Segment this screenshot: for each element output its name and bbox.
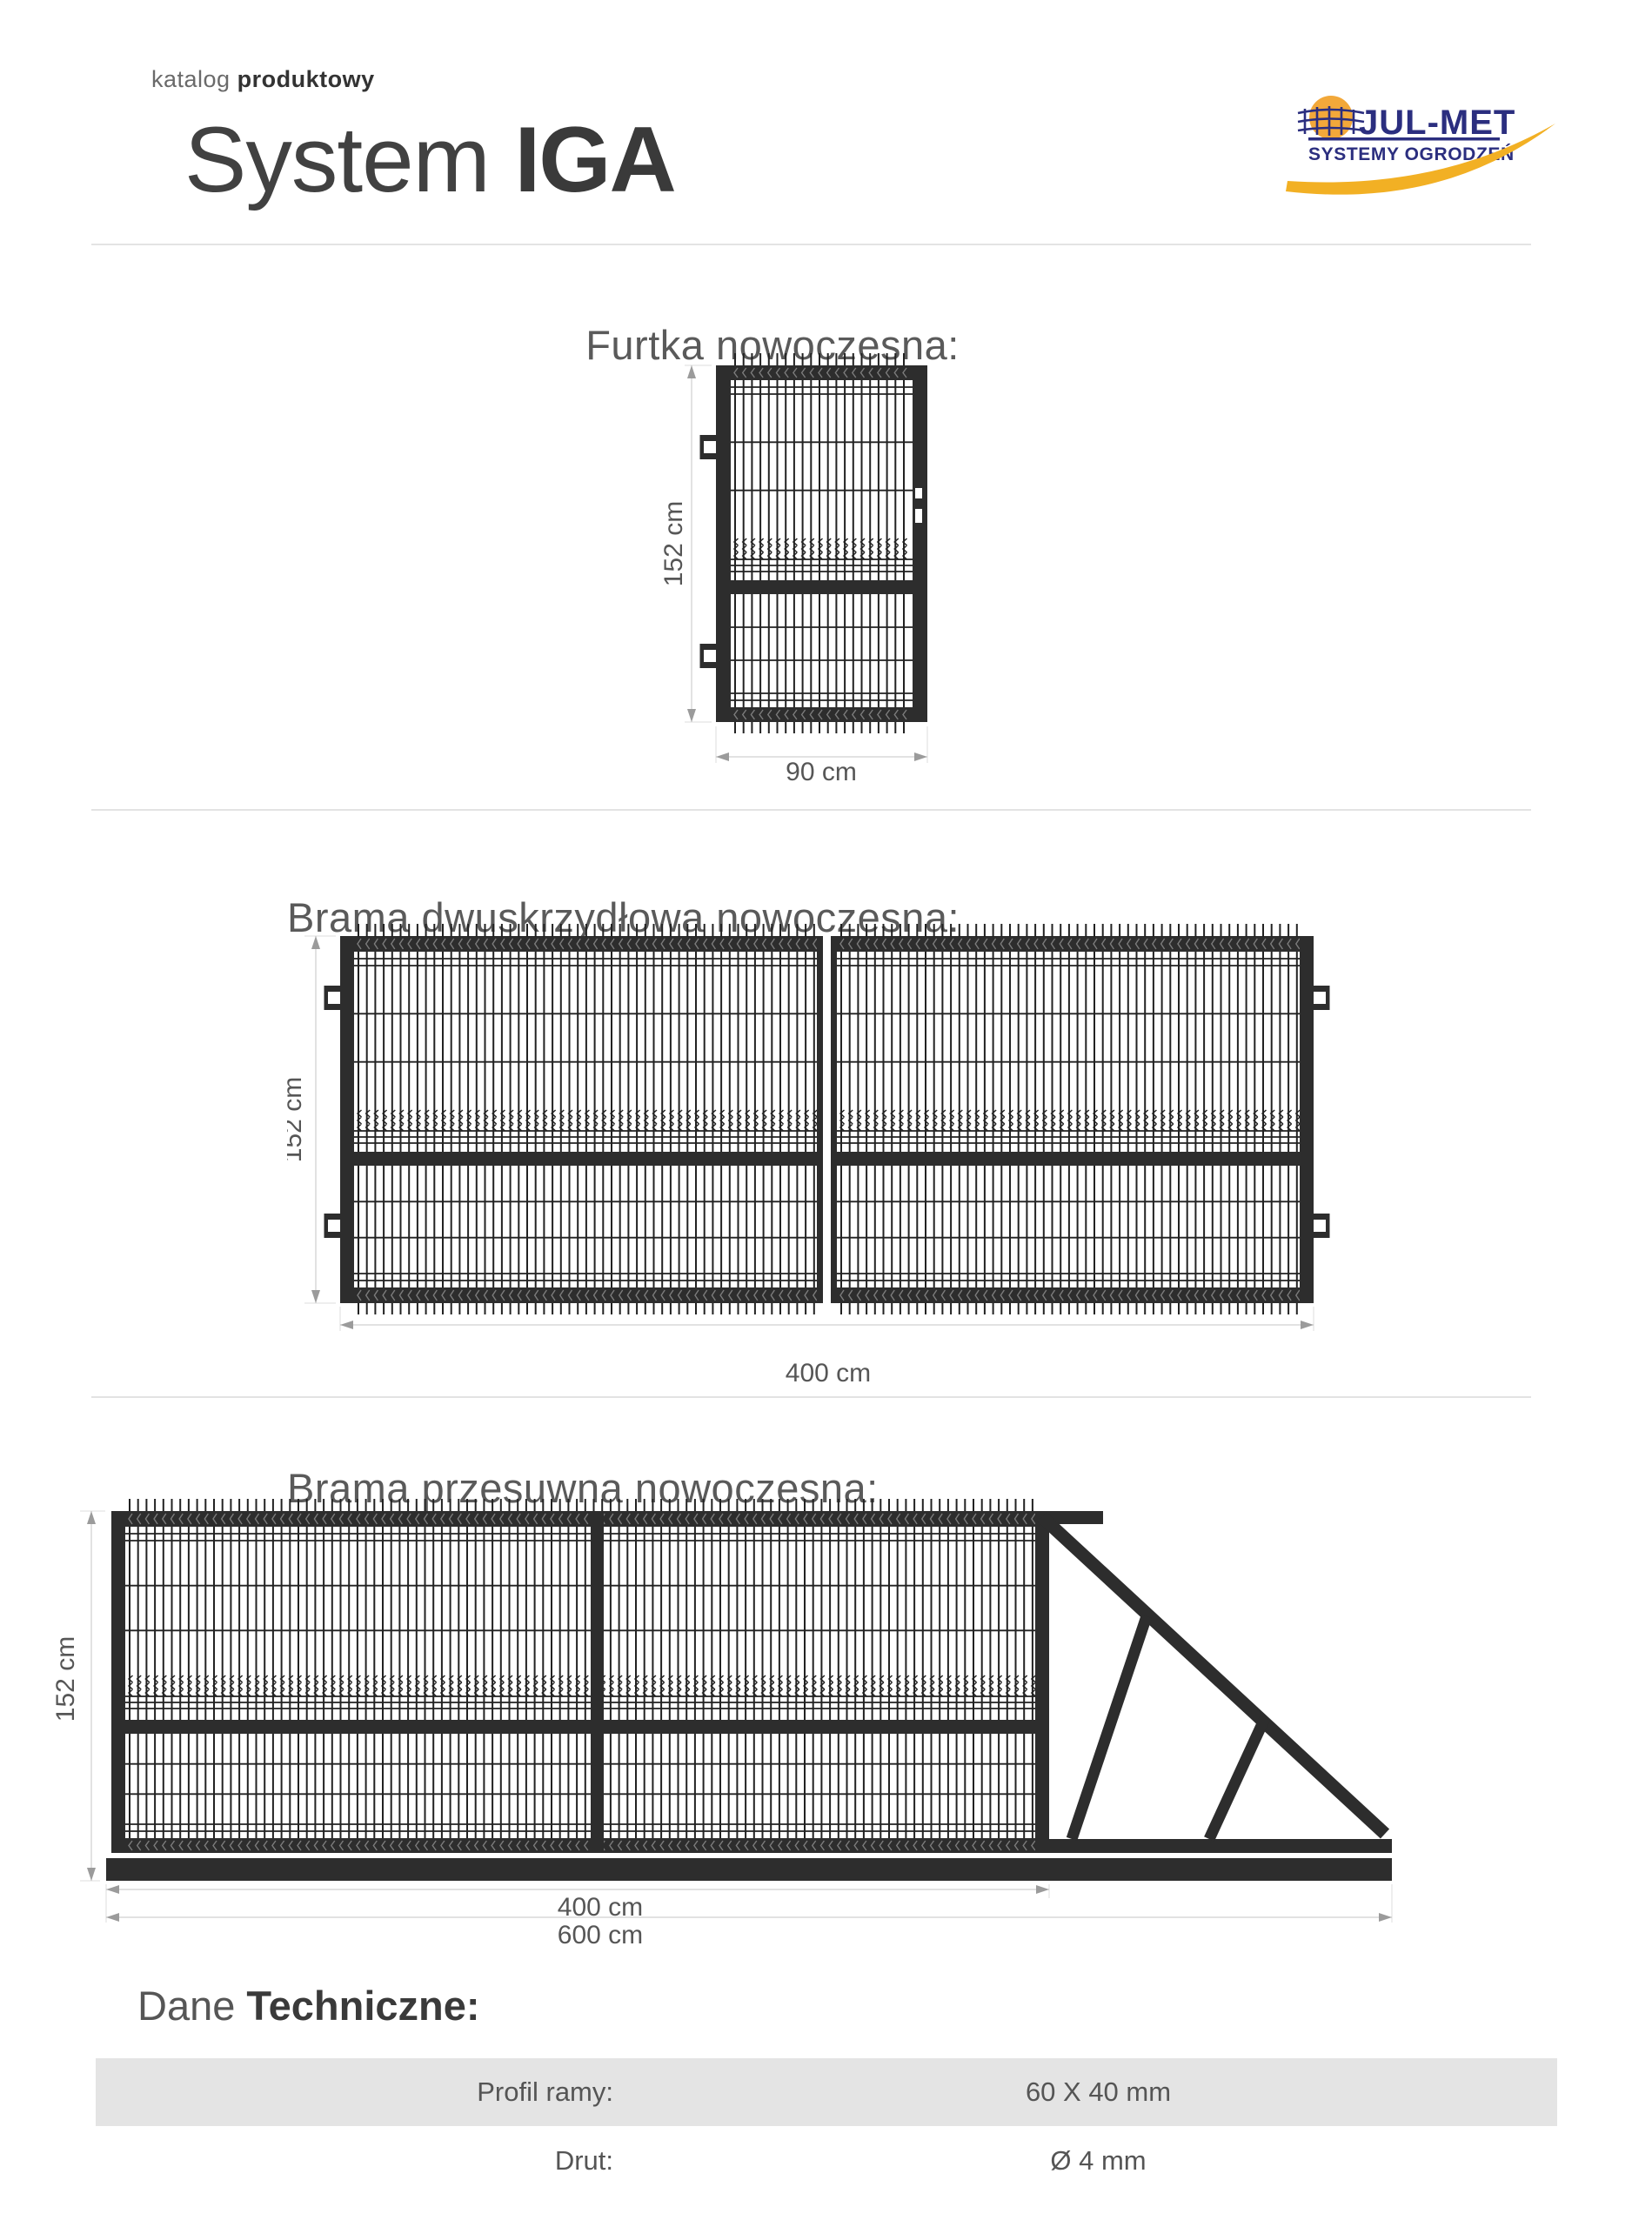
divider <box>91 244 1531 245</box>
logo-underline <box>1308 137 1500 141</box>
page-title-light: System <box>184 107 490 211</box>
furtka-drawing: 152 cm 90 cm <box>644 344 1053 805</box>
drawing-geometry <box>304 924 1330 1331</box>
drawing-geometry <box>685 353 927 763</box>
row-label: Profil ramy: <box>96 2077 613 2108</box>
table-row: Profil ramy: 60 X 40 mm <box>96 2058 1557 2126</box>
logo-name: JUL-MET <box>1359 104 1515 142</box>
row-value: Ø 4 mm <box>613 2145 1557 2177</box>
dim-height-label: 152 cm <box>287 1077 307 1162</box>
page-title: System IGA <box>184 111 675 207</box>
sliding-gate-drawing: 152 cm 400 cm 600 cm <box>48 1470 1527 1957</box>
tech-heading-bold: Techniczne: <box>246 1983 479 2029</box>
page-title-bold: IGA <box>514 107 674 211</box>
tech-heading-light: Dane <box>137 1983 235 2029</box>
row-label: Drut: <box>96 2145 613 2177</box>
dim-width-label: 400 cm <box>786 1359 871 1388</box>
dim-gate-width-label: 400 cm <box>558 1893 643 1922</box>
kicker-bold: produktowy <box>237 66 375 92</box>
divider <box>91 809 1531 811</box>
catalog-kicker: katalog produktowy <box>151 66 375 93</box>
dim-width-label: 90 cm <box>786 758 857 786</box>
sun-icon <box>1309 96 1353 139</box>
double-gate-drawing: 152 cm 400 cm <box>287 905 1374 1392</box>
tech-heading: Dane Techniczne: <box>137 1982 480 2030</box>
dim-height-label: 152 cm <box>51 1636 80 1722</box>
dim-height-label: 152 cm <box>659 501 688 586</box>
divider <box>91 1396 1531 1398</box>
table-row: Drut: Ø 4 mm <box>96 2126 1557 2196</box>
catalog-page: katalog produktowy System IGA JUL-MET SY… <box>0 0 1652 2227</box>
kicker-light: katalog <box>151 66 231 92</box>
julmet-logo: JUL-MET SYSTEMY OGRODZEŃ <box>1253 77 1566 207</box>
drawing-geometry <box>80 1499 1392 1923</box>
row-value: 60 X 40 mm <box>613 2077 1557 2108</box>
dim-total-width-label: 600 cm <box>558 1921 643 1949</box>
